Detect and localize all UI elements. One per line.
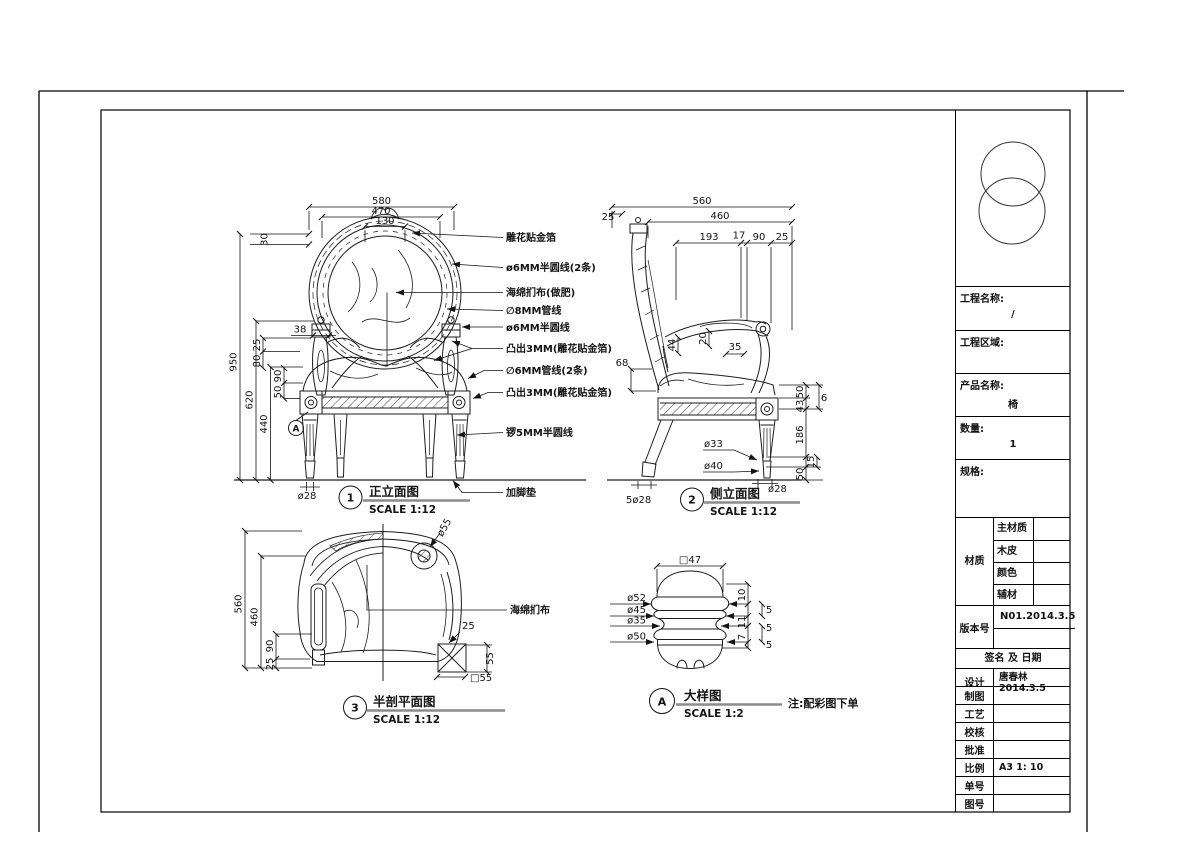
spec-label: 规格:: [956, 460, 1070, 478]
dim-sq47: □47: [679, 555, 701, 566]
dim-scroll-o55: ø55: [435, 517, 454, 539]
dim-560: 560: [234, 594, 245, 613]
dim-r186: 186: [795, 425, 806, 444]
dim-30: 30: [260, 233, 271, 246]
quantity-cell: 数量: 1: [956, 416, 1070, 459]
plan-view-title: 3 半剖平面图 SCALE 1:12: [344, 694, 506, 726]
dim-440: 440: [259, 414, 270, 433]
dim-25: 25: [252, 339, 263, 352]
version-value: N01.2014.3.5: [993, 606, 1075, 628]
material-row-value: [1033, 584, 1070, 606]
sign-row-order-no: 单号: [956, 776, 1070, 794]
dim-25-right: 25: [776, 232, 789, 243]
project-area-label: 工程区域:: [956, 331, 1070, 349]
project-area-cell: 工程区域:: [956, 330, 1070, 373]
detail-view: [651, 571, 728, 669]
detail-marker-a: A: [293, 425, 300, 435]
sign-value: [993, 723, 1070, 740]
dim-5a: 5: [766, 605, 772, 616]
sign-label: 比例: [956, 759, 993, 776]
view-title: 侧立面图: [710, 486, 760, 501]
dim-68: 68: [616, 358, 629, 369]
view-title: 正立面图: [369, 484, 419, 499]
sign-value: [993, 741, 1070, 758]
dim-r50a: 50: [795, 386, 806, 399]
dim-leg-o33: ø33: [704, 439, 723, 450]
leader-label: ∅6MM管线(2条): [506, 364, 588, 377]
dim-foot-o28: ø28: [768, 484, 787, 495]
material-row-value: [1033, 562, 1070, 584]
sign-value: [993, 705, 1070, 722]
view-scale: SCALE 1:12: [369, 504, 436, 516]
sign-label: 单号: [956, 777, 993, 794]
dim-edge-25: 25: [462, 621, 475, 632]
project-name-value: /: [956, 309, 1070, 320]
material-row-value: [1033, 540, 1070, 562]
product-name-label: 产品名称:: [956, 374, 1070, 392]
side-dimension-texts: 560 460 25 193 17 90 25 44 20 35 68 50 4…: [602, 196, 828, 506]
front-view-title: 1 正立面图 SCALE 1:12: [339, 484, 470, 516]
dim-r6: 6: [821, 393, 827, 404]
dim-50: 50: [273, 386, 284, 399]
sign-row-craft: 工艺: [956, 704, 1070, 722]
material-row-value: [1033, 518, 1070, 540]
dim-25: 25: [265, 658, 276, 671]
dim-foot-o28: ø28: [298, 491, 317, 502]
view-number: A: [658, 696, 667, 709]
dim-side-55: 55: [485, 652, 496, 665]
dim-feet-5o28: 5ø28: [626, 495, 651, 506]
material-row-label: 颜色: [993, 562, 1033, 584]
sign-value: [993, 795, 1070, 812]
leader-label: 海绵扪布(做肥): [506, 286, 575, 299]
sign-row-draft: 制图: [956, 686, 1070, 704]
material-row-label: 主材质: [993, 518, 1033, 540]
dim-r50b: 50: [795, 468, 806, 481]
dim-460: 460: [710, 211, 729, 222]
quantity-value: 1: [956, 439, 1070, 450]
dim-o35: ø35: [627, 616, 646, 627]
quantity-label: 数量:: [956, 417, 1070, 435]
dim-193: 193: [699, 232, 718, 243]
product-name-value: 椅: [956, 396, 1070, 411]
dim-11: 11: [737, 616, 748, 629]
project-name-cell: 工程名称: /: [956, 286, 1070, 330]
leader-label: ∅8MM管线: [506, 304, 561, 317]
plan-dimensions: [245, 531, 507, 677]
sign-value: A3 1: 10: [993, 759, 1070, 776]
view-title: 大样图: [684, 688, 722, 703]
product-name-cell: 产品名称: 椅: [956, 373, 1070, 416]
version-value-2: [993, 628, 1075, 650]
dim-90: 90: [265, 640, 276, 653]
dim-80: 80: [252, 355, 263, 368]
dim-950: 950: [229, 352, 240, 371]
dim-r43: 43: [795, 400, 806, 413]
sign-label: 制图: [956, 687, 993, 704]
logo-cell: [956, 110, 1070, 286]
dim-o45: ø45: [627, 605, 646, 616]
plan-view: [298, 524, 466, 681]
signature-header: 签名 及 日期: [956, 648, 1070, 668]
material-label: 材质: [956, 518, 993, 606]
dim-5c: 5: [766, 640, 772, 651]
view-scale: SCALE 1:2: [684, 708, 744, 720]
view-title: 半剖平面图: [373, 694, 436, 709]
leader-label: 锣5MM半圆线: [506, 426, 573, 439]
detail-view-title: A 大样图 SCALE 1:2 注:配彩图下单: [650, 688, 859, 720]
sign-label: 校核: [956, 723, 993, 740]
view-number: 1: [347, 492, 355, 505]
order-note: 注:配彩图下单: [788, 696, 858, 710]
project-name-label: 工程名称:: [956, 287, 1070, 305]
version-cell: 版本号 N01.2014.3.5: [956, 605, 1070, 648]
material-table: 材质 主材质 木皮 颜色 辅材: [956, 517, 1070, 605]
dim-35: 35: [729, 342, 742, 353]
dim-o52: ø52: [627, 593, 646, 604]
dim-17: 17: [733, 231, 746, 242]
view-number: 2: [688, 494, 696, 507]
front-dimension-texts: 580 470 130 30 950 620 440 38 25 80 90 5…: [229, 196, 613, 502]
dim-90: 90: [753, 232, 766, 243]
leader-label: 雕花贴金箔: [506, 231, 556, 244]
sign-label: 批准: [956, 741, 993, 758]
dim-90: 90: [273, 370, 284, 383]
sign-row-approve: 批准: [956, 740, 1070, 758]
dim-7: 7: [737, 634, 748, 640]
version-label: 版本号: [956, 606, 993, 649]
plan-upholstery-label: 海绵扪布: [510, 604, 550, 617]
sign-row-design: 设计 唐春林 2014.3.5: [956, 668, 1070, 686]
sign-value: [993, 777, 1070, 794]
leader-label: 凸出3MM(雕花贴金箔): [506, 342, 612, 355]
dim-25-left: 25: [602, 212, 615, 223]
detail-dimension-texts: □47 ø52 ø45 ø35 ø50 10 5 11 5 7 5: [627, 555, 772, 651]
logo-circles-icon: [956, 110, 1069, 284]
dim-block-55: □55: [470, 673, 492, 684]
view-number: 3: [351, 702, 359, 715]
leader-label: ø6MM半圆线: [506, 321, 570, 334]
dim-560: 560: [692, 196, 711, 207]
spec-cell: 规格:: [956, 459, 1070, 517]
dim-r15: 15: [806, 456, 817, 469]
view-scale: SCALE 1:12: [373, 714, 440, 726]
drawing-sheet: 580 470 130 30 950 620 440 38 25 80 90 5…: [0, 0, 1191, 842]
dim-20: 20: [698, 332, 709, 345]
dim-460: 460: [250, 607, 261, 626]
dim-5b: 5: [766, 623, 772, 634]
dim-620: 620: [245, 390, 256, 409]
material-row-label: 辅材: [993, 584, 1033, 606]
sign-row-scale: 比例 A3 1: 10: [956, 758, 1070, 776]
dim-44: 44: [667, 339, 678, 352]
sign-row-drawing-no: 图号: [956, 794, 1070, 812]
leader-label: ø6MM半圆线(2条): [506, 261, 596, 274]
dim-o50: ø50: [627, 632, 646, 643]
dim-leg-o40: ø40: [704, 461, 723, 472]
material-row-label: 木皮: [993, 540, 1033, 562]
leader-label: 加脚垫: [505, 486, 536, 499]
title-block: 工程名称: / 工程区域: 产品名称: 椅 数量: 1 规格: 材质 主材质 木…: [955, 110, 1070, 812]
sign-label: 图号: [956, 795, 993, 812]
view-scale: SCALE 1:12: [710, 506, 777, 518]
inner-frame: [101, 110, 1070, 812]
sign-value: [993, 687, 1070, 704]
leader-label: 凸出3MM(雕花贴金箔): [506, 386, 612, 399]
dim-130: 130: [375, 216, 394, 227]
dim-10: 10: [737, 589, 748, 602]
sign-label: 工艺: [956, 705, 993, 722]
dim-38: 38: [294, 325, 307, 336]
sign-row-check: 校核: [956, 722, 1070, 740]
